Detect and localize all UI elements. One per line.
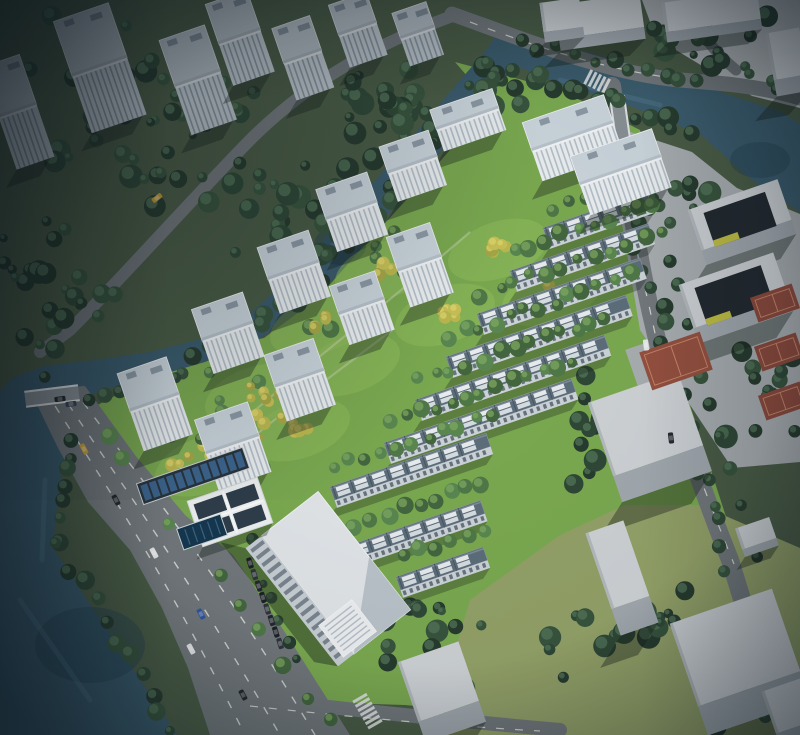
lighting-overlay bbox=[0, 0, 800, 735]
aerial-rendering bbox=[0, 0, 800, 735]
vignette bbox=[0, 0, 800, 735]
rendering-canvas bbox=[0, 0, 800, 735]
